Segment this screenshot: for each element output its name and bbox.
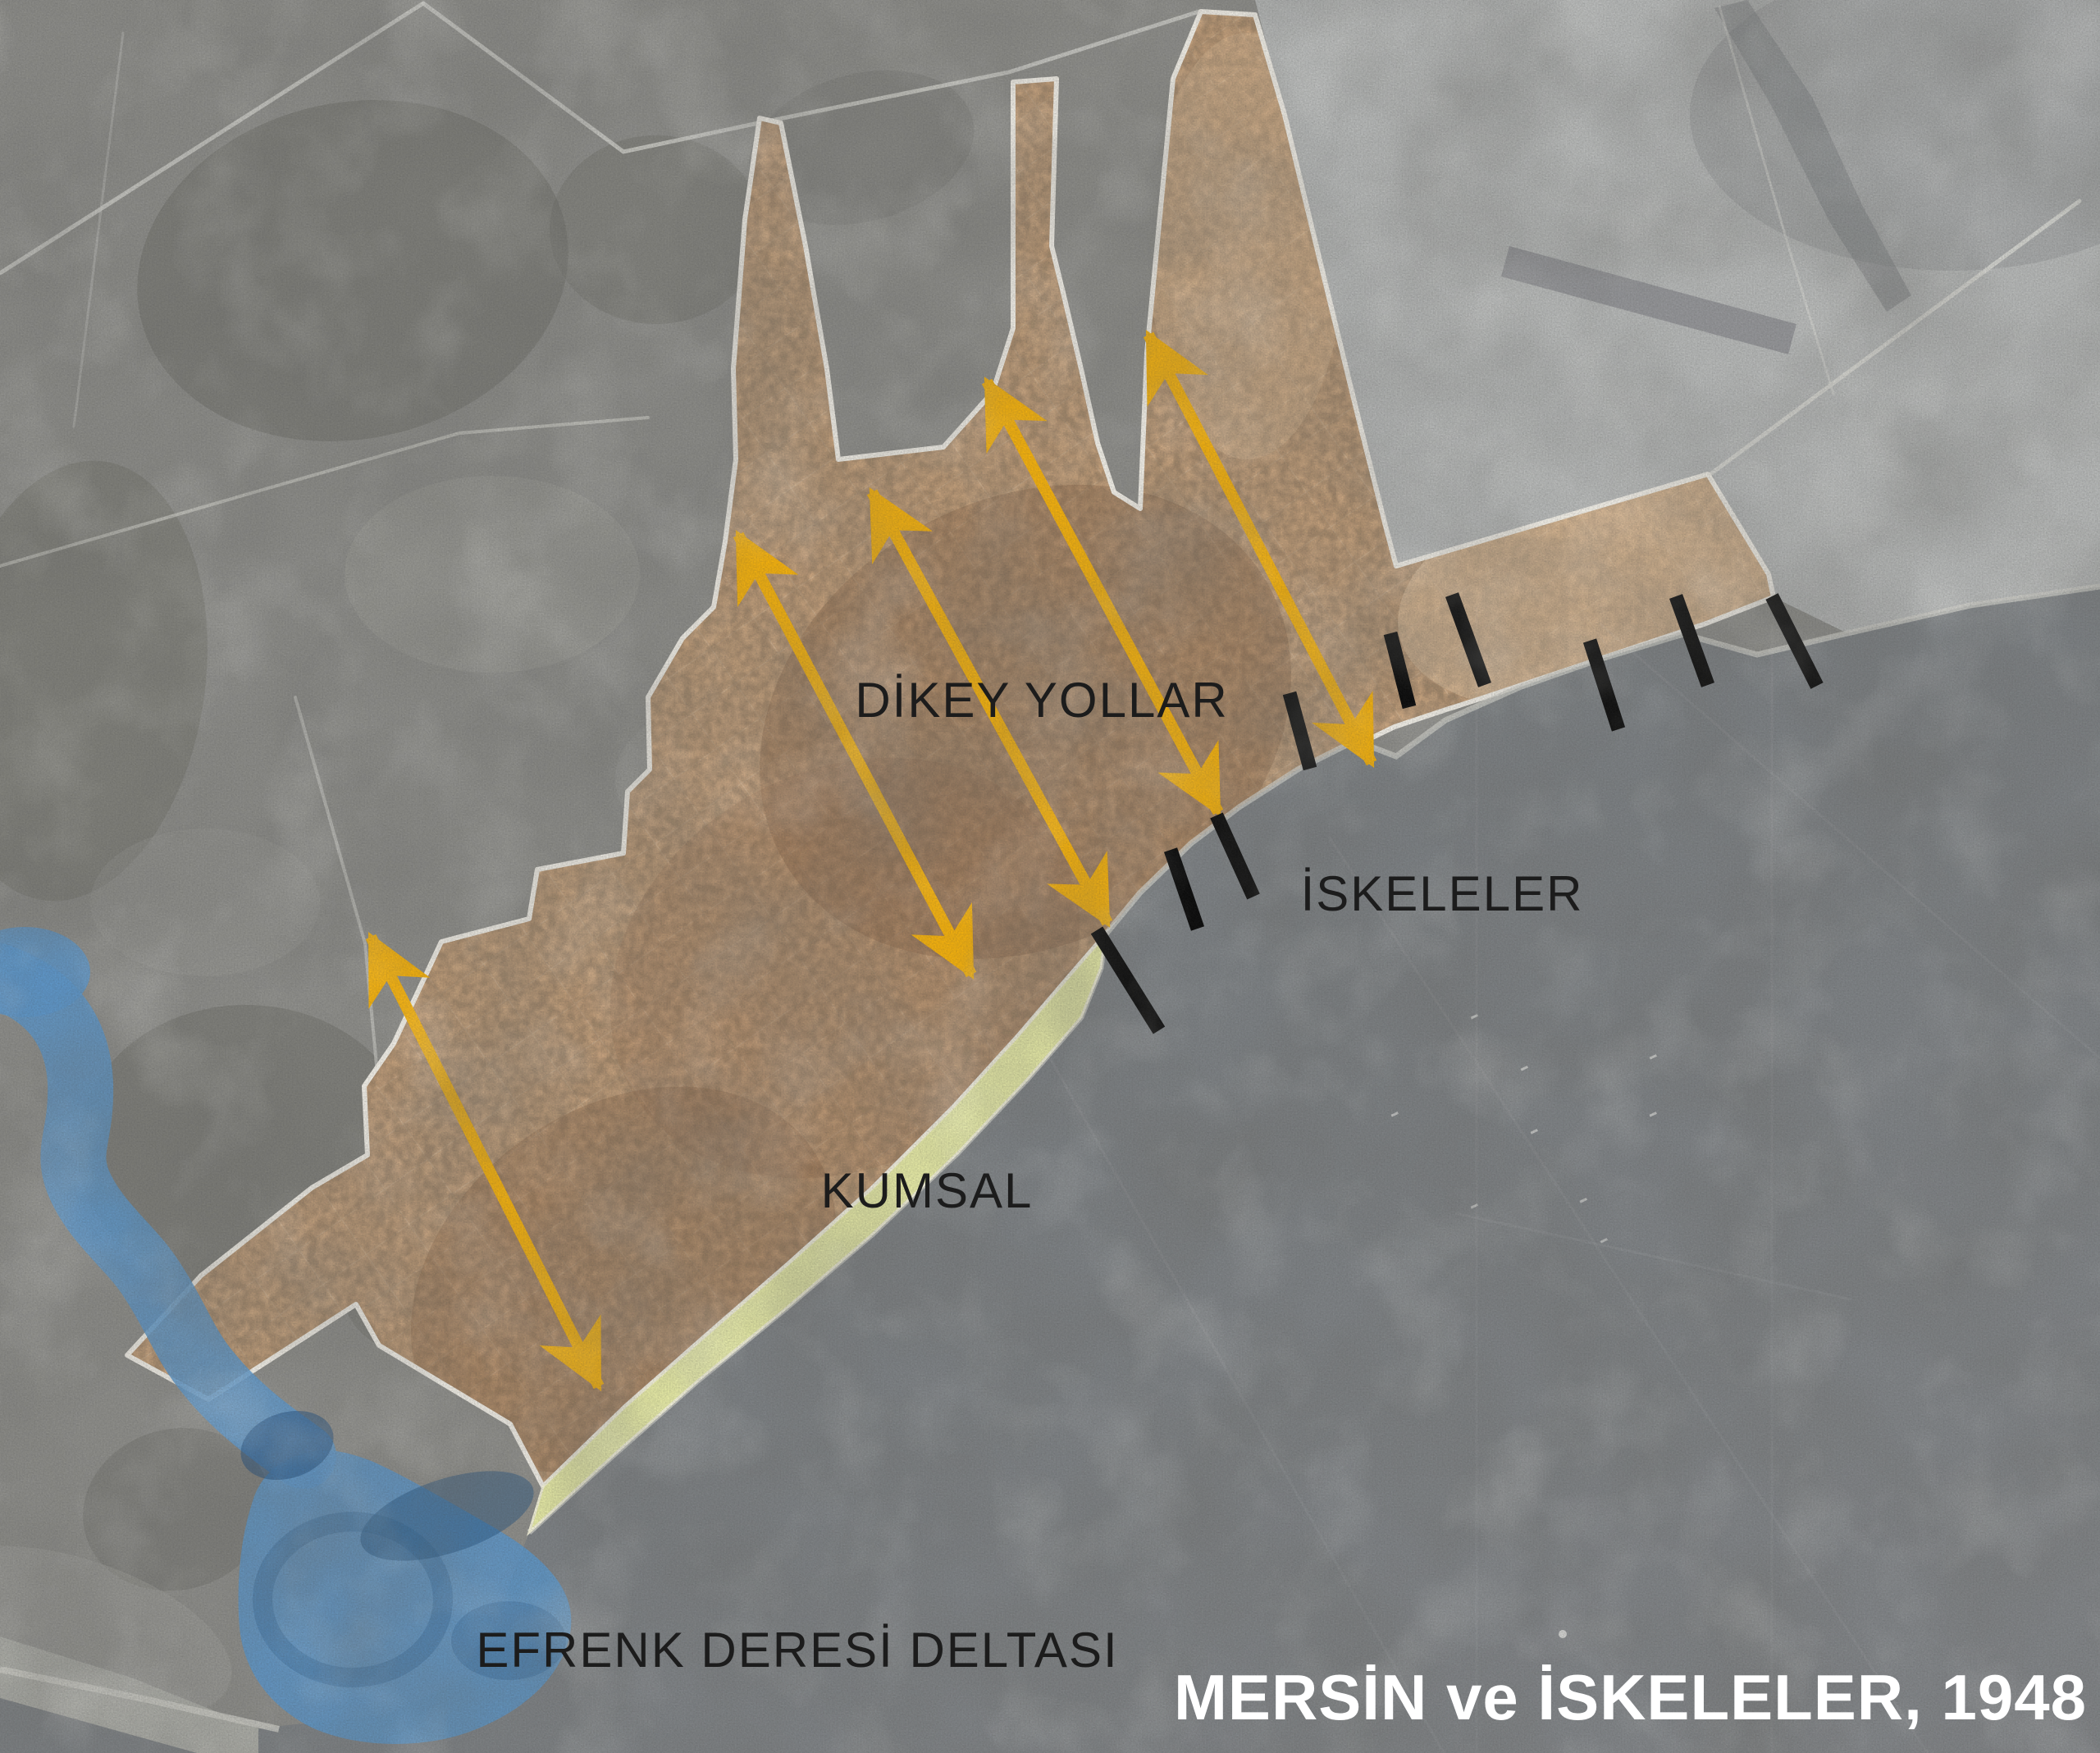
annotated-aerial-map: DİKEY YOLLAR İSKELELER KUMSAL EFRENK DER… [0,0,2100,1753]
map-title: MERSİN ve İSKELELER, 1948 [1174,1661,2087,1733]
label-kumsal: KUMSAL [821,1163,1034,1218]
label-efrenk-deresi-deltasi: EFRENK DERESİ DELTASI [476,1623,1118,1678]
label-iskeleler: İSKELELER [1301,866,1584,921]
photo-grain [0,0,2100,1753]
map-canvas: DİKEY YOLLAR İSKELELER KUMSAL EFRENK DER… [0,0,2100,1753]
label-dikey-yollar: DİKEY YOLLAR [855,673,1228,728]
